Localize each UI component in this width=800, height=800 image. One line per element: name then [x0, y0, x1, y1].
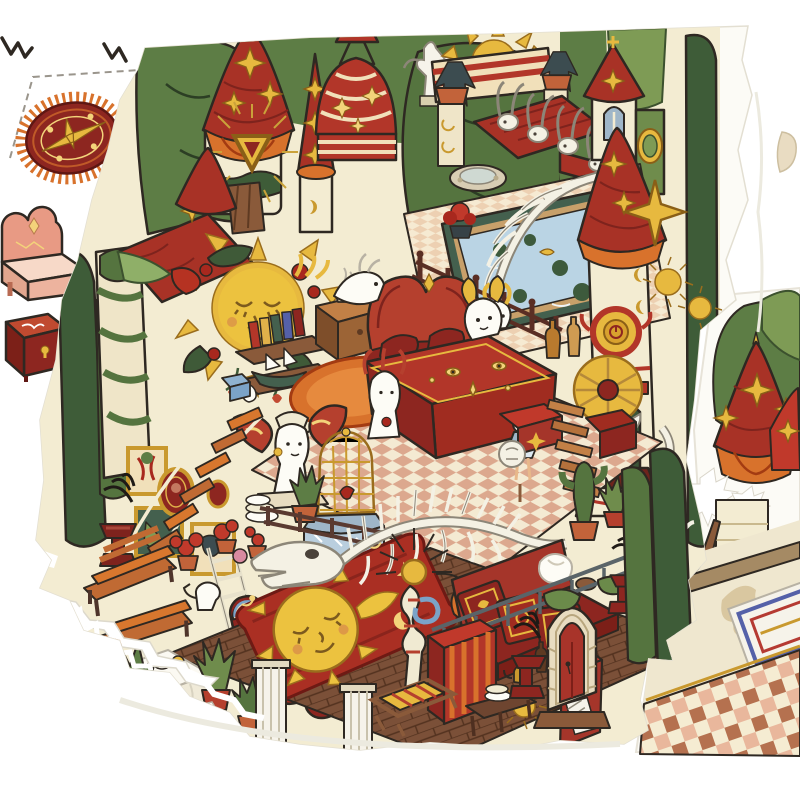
- page-fragment: [777, 132, 796, 172]
- main-piece: Die-cut castle cutaway illustration with…: [30, 20, 752, 760]
- moss-drape: [544, 589, 580, 610]
- skull-sphere: [499, 441, 525, 467]
- crop-marks: [2, 38, 126, 61]
- photo-of-illustrated-spread: Second illustrated sheet underneath, rig…: [0, 0, 800, 800]
- illustration-canvas: Second illustrated sheet underneath, rig…: [0, 0, 800, 800]
